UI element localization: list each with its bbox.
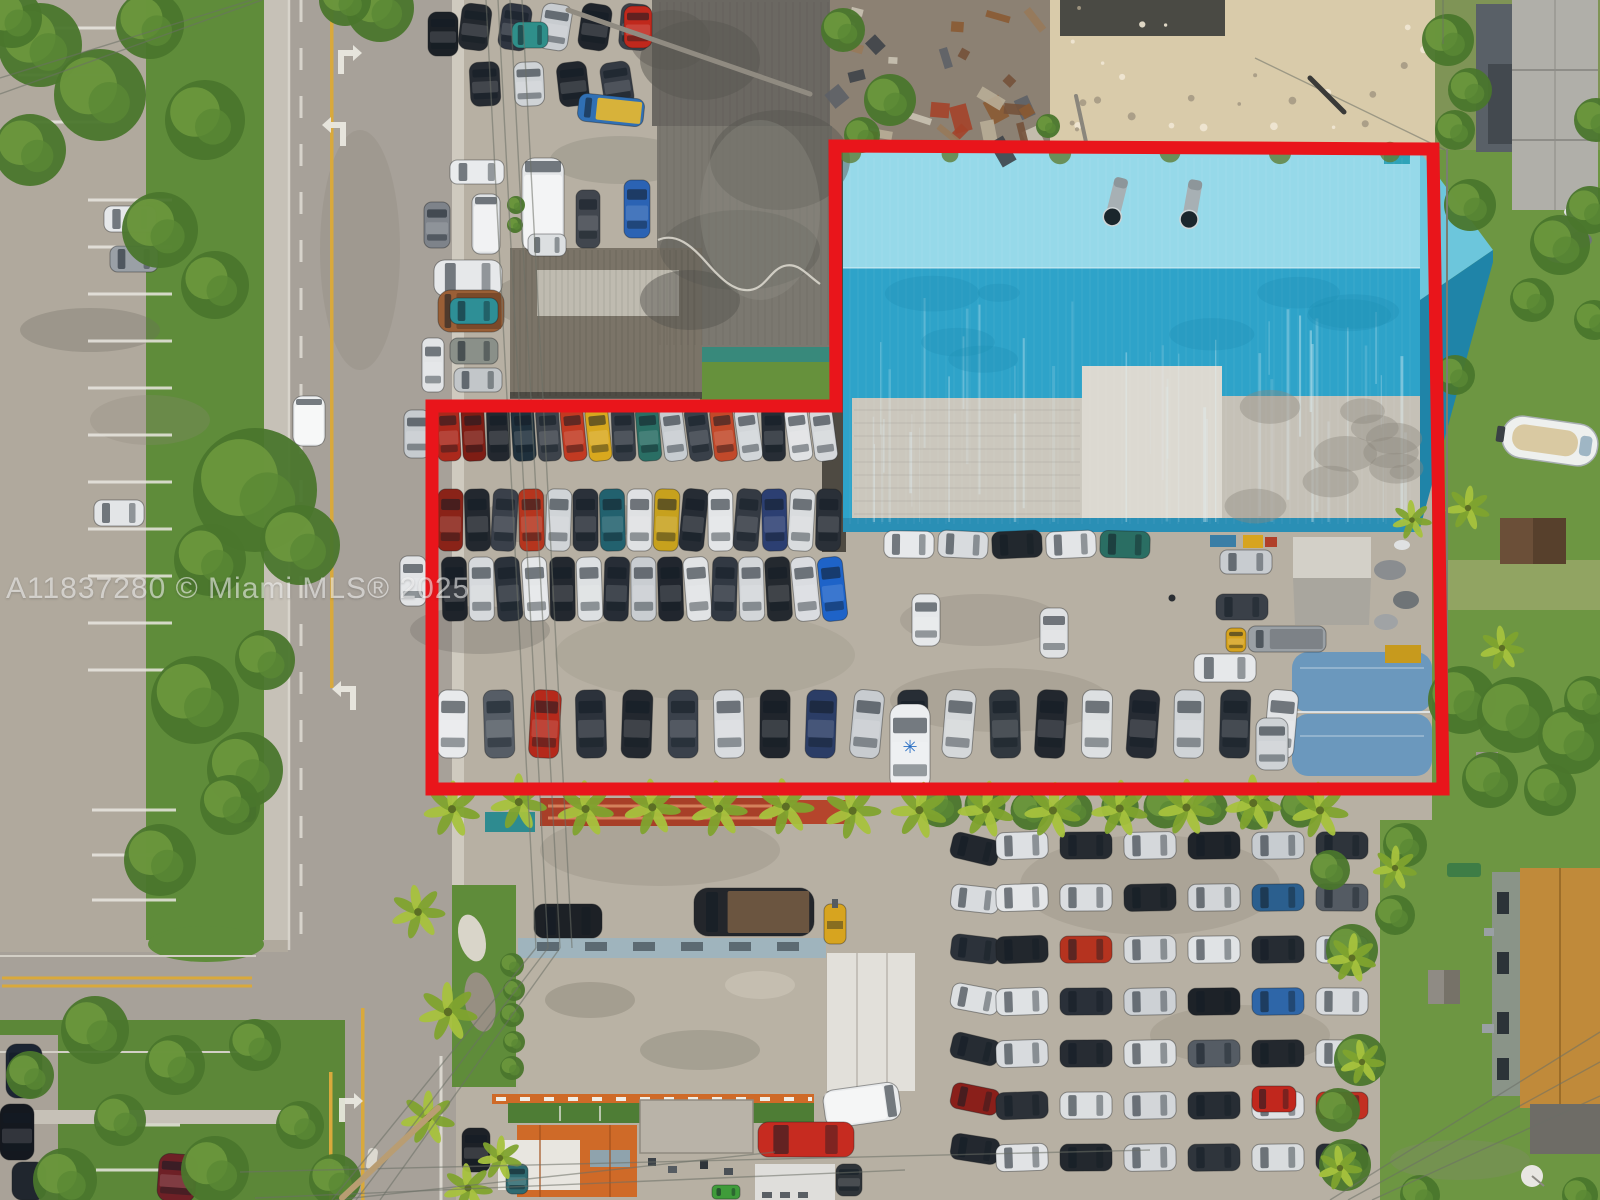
- vehicle: [996, 935, 1049, 964]
- tree: [1036, 114, 1060, 138]
- tree: [276, 1101, 324, 1149]
- vehicle: [1124, 1091, 1177, 1119]
- tree: [235, 630, 295, 690]
- tree: [1444, 179, 1496, 231]
- vehicle: [1226, 628, 1246, 652]
- vehicle: [1316, 988, 1368, 1015]
- vehicle: [733, 488, 763, 552]
- vehicle: [996, 1039, 1049, 1068]
- vehicle: [1216, 594, 1268, 620]
- tree: [229, 1019, 281, 1071]
- vehicle: [1060, 936, 1112, 963]
- vehicle: [1194, 654, 1256, 682]
- concrete-roof-mid: [1082, 366, 1222, 520]
- vehicle: [761, 407, 786, 462]
- sidewalk-south: [0, 1110, 310, 1124]
- red-sports-car: [1252, 1086, 1296, 1112]
- gray-canopy: [640, 1100, 753, 1153]
- aerial-photo: ✳ A11837280 © Miami MLS® 2025: [0, 0, 1600, 1200]
- svg-text:✳: ✳: [902, 737, 917, 758]
- tree: [1422, 14, 1474, 66]
- vehicle: [450, 338, 498, 364]
- vehicle: [711, 557, 738, 622]
- vehicle: [996, 987, 1049, 1016]
- vehicle: [849, 689, 885, 759]
- vehicle: [1124, 1039, 1177, 1067]
- vehicle: [996, 1091, 1049, 1120]
- vehicle: [941, 689, 976, 759]
- vehicle: [461, 406, 487, 461]
- tree: [181, 251, 249, 319]
- tree: [1524, 764, 1576, 816]
- vehicle: [653, 489, 680, 552]
- tree: [151, 656, 239, 744]
- tree: [1316, 1088, 1360, 1132]
- vehicle: [1034, 689, 1068, 759]
- vehicle: [1188, 936, 1240, 964]
- vehicle: [678, 488, 709, 552]
- person-dot: [1169, 595, 1176, 602]
- vehicle: [1188, 1144, 1240, 1172]
- vehicle: [436, 406, 462, 461]
- tree: [503, 1031, 525, 1053]
- forklift: [824, 899, 846, 944]
- asphalt-pile: [1060, 0, 1225, 36]
- vehicle: [1219, 690, 1251, 759]
- vehicle: [713, 690, 745, 759]
- vehicle: [657, 557, 684, 622]
- vehicle: [1060, 1144, 1112, 1171]
- brown-shed-shade: [1533, 518, 1566, 564]
- vehicle: [450, 298, 498, 324]
- vehicle: [627, 489, 652, 551]
- vehicle: [454, 368, 502, 392]
- vehicle: [764, 556, 793, 621]
- vehicle: [1060, 884, 1112, 911]
- vehicle: [912, 594, 940, 646]
- vehicle: [1060, 832, 1112, 859]
- tree: [122, 192, 198, 268]
- vehicle: [805, 690, 837, 759]
- vehicle: [518, 489, 544, 552]
- vehicle: [712, 1185, 740, 1199]
- vehicle: [631, 557, 657, 621]
- vehicle: [1045, 530, 1096, 559]
- flatbed-truck: [694, 888, 814, 936]
- tree: [1530, 215, 1590, 275]
- vehicle: [1100, 530, 1151, 558]
- tree: [1310, 850, 1350, 890]
- vehicle: [469, 557, 495, 621]
- tree: [61, 996, 129, 1064]
- tree: [54, 49, 146, 141]
- vehicle: [1060, 1092, 1112, 1119]
- red-crate: [1265, 537, 1277, 547]
- ac-unit: [1482, 1024, 1494, 1033]
- vehicle: [599, 489, 626, 552]
- tree: [500, 953, 524, 977]
- vehicle: [624, 180, 650, 238]
- vehicle: [937, 530, 988, 559]
- vehicle: [603, 557, 630, 622]
- vehicle: [1188, 884, 1240, 912]
- yellow-crate: [1243, 535, 1263, 548]
- vehicle: [0, 1104, 34, 1160]
- tree: [124, 824, 196, 896]
- vehicle: [836, 1164, 862, 1196]
- vehicle: [1126, 689, 1161, 759]
- vehicle: [991, 530, 1042, 559]
- vehicle: [682, 556, 712, 622]
- white-shed: [1293, 537, 1371, 625]
- yard-shed-shade: [1444, 970, 1460, 1004]
- vehicle: [577, 2, 613, 52]
- tree: [165, 80, 245, 160]
- tree: [1435, 110, 1475, 150]
- vehicle: [472, 194, 500, 254]
- tree: [200, 775, 260, 835]
- vehicle: [422, 338, 444, 392]
- vehicle: [1252, 988, 1304, 1016]
- vehicle: [573, 489, 598, 551]
- yellow-line-south-right: [361, 1008, 365, 1200]
- vehicle: [950, 883, 1001, 914]
- vehicle: [464, 489, 491, 552]
- vehicle: [1252, 884, 1304, 912]
- vehicle: [787, 488, 815, 551]
- vehicle: [1188, 832, 1240, 860]
- vehicle: [94, 500, 144, 526]
- tree: [1375, 895, 1415, 935]
- vehicle: [1124, 831, 1177, 859]
- house-window: [1497, 892, 1509, 914]
- tree: [821, 8, 865, 52]
- vehicle: [1188, 1040, 1240, 1068]
- vehicle: [1256, 718, 1288, 770]
- vehicle: [584, 406, 612, 462]
- vehicle: [996, 883, 1049, 912]
- vehicle: [469, 61, 501, 106]
- vehicle: [1040, 608, 1068, 658]
- vehicle: [576, 190, 600, 248]
- vehicle: [1248, 626, 1326, 652]
- vehicle: [486, 407, 511, 462]
- vehicle: [611, 407, 636, 462]
- vehicle: [760, 690, 790, 758]
- quonset-buildings: [1292, 652, 1432, 776]
- vehicle: [668, 690, 698, 758]
- tree: [6, 1051, 54, 1099]
- vehicle: [708, 489, 734, 551]
- vehicle: [950, 933, 1001, 965]
- vehicle: [1252, 1040, 1304, 1068]
- vehicle: [989, 690, 1021, 759]
- box-truck-on-road: [293, 396, 325, 446]
- row-under-warehouse: [884, 530, 1151, 559]
- inventory-row-mid-a: [438, 488, 842, 552]
- vehicle: [528, 234, 566, 256]
- vehicle: [1252, 1144, 1304, 1172]
- vehicle: [1124, 987, 1177, 1015]
- vehicle: [424, 202, 450, 248]
- east-yard-path: [1448, 560, 1600, 610]
- vehicle: [1124, 935, 1177, 963]
- vehicle: [1124, 1143, 1177, 1171]
- vehicle: [635, 406, 662, 462]
- teal-trim: [700, 347, 832, 363]
- vehicle: [1188, 988, 1240, 1016]
- tree: [145, 1035, 205, 1095]
- vehicle: [1252, 832, 1304, 860]
- vehicle: [512, 22, 548, 48]
- vehicle: [1124, 883, 1177, 911]
- vehicle: [521, 556, 550, 621]
- vehicle: [528, 689, 562, 759]
- vehicle: [1060, 988, 1112, 1015]
- vehicle: [1173, 690, 1204, 758]
- yellow-machine: [1385, 645, 1421, 663]
- tree: [1510, 278, 1554, 322]
- vehicle: [624, 6, 652, 48]
- vehicle: [1188, 1092, 1240, 1120]
- ac-unit: [1484, 928, 1494, 936]
- tree: [1462, 752, 1518, 808]
- vehicle: [738, 557, 765, 622]
- tree: [1448, 68, 1492, 112]
- vehicle: [621, 690, 653, 759]
- vehicle: [438, 489, 464, 551]
- van-with-blue-star: ✳: [890, 704, 930, 790]
- vehicle: [513, 61, 545, 106]
- vehicle: [559, 406, 587, 462]
- vehicle: [428, 12, 458, 56]
- vehicle: [534, 904, 602, 938]
- vehicle: [1081, 690, 1112, 759]
- house-window: [1497, 952, 1509, 974]
- house-window: [1497, 1058, 1509, 1080]
- tree: [94, 1094, 146, 1146]
- tree: [500, 1056, 524, 1080]
- vehicle: [996, 831, 1049, 860]
- vehicle: [996, 1143, 1049, 1172]
- vehicle: [761, 489, 788, 552]
- inventory-row-mid-b: [441, 556, 848, 622]
- vehicle: [438, 690, 469, 758]
- vehicle: [1252, 936, 1304, 964]
- white-canopy: [827, 953, 915, 1091]
- house-window: [1497, 1012, 1509, 1034]
- vehicle: [1060, 1040, 1112, 1067]
- vehicle: [483, 690, 515, 759]
- tree: [864, 74, 916, 126]
- mls-watermark: A11837280 © Miami MLS® 2025: [6, 572, 470, 606]
- vehicle: [575, 690, 607, 759]
- blue-tarp-small: [1210, 535, 1236, 547]
- vehicle: [576, 557, 603, 622]
- utility-boxes: [1447, 863, 1481, 877]
- vehicle: [535, 406, 562, 462]
- vehicle: [884, 531, 934, 559]
- vehicle: [815, 489, 841, 552]
- vehicle: [1220, 550, 1272, 574]
- grass-patch: [700, 362, 830, 404]
